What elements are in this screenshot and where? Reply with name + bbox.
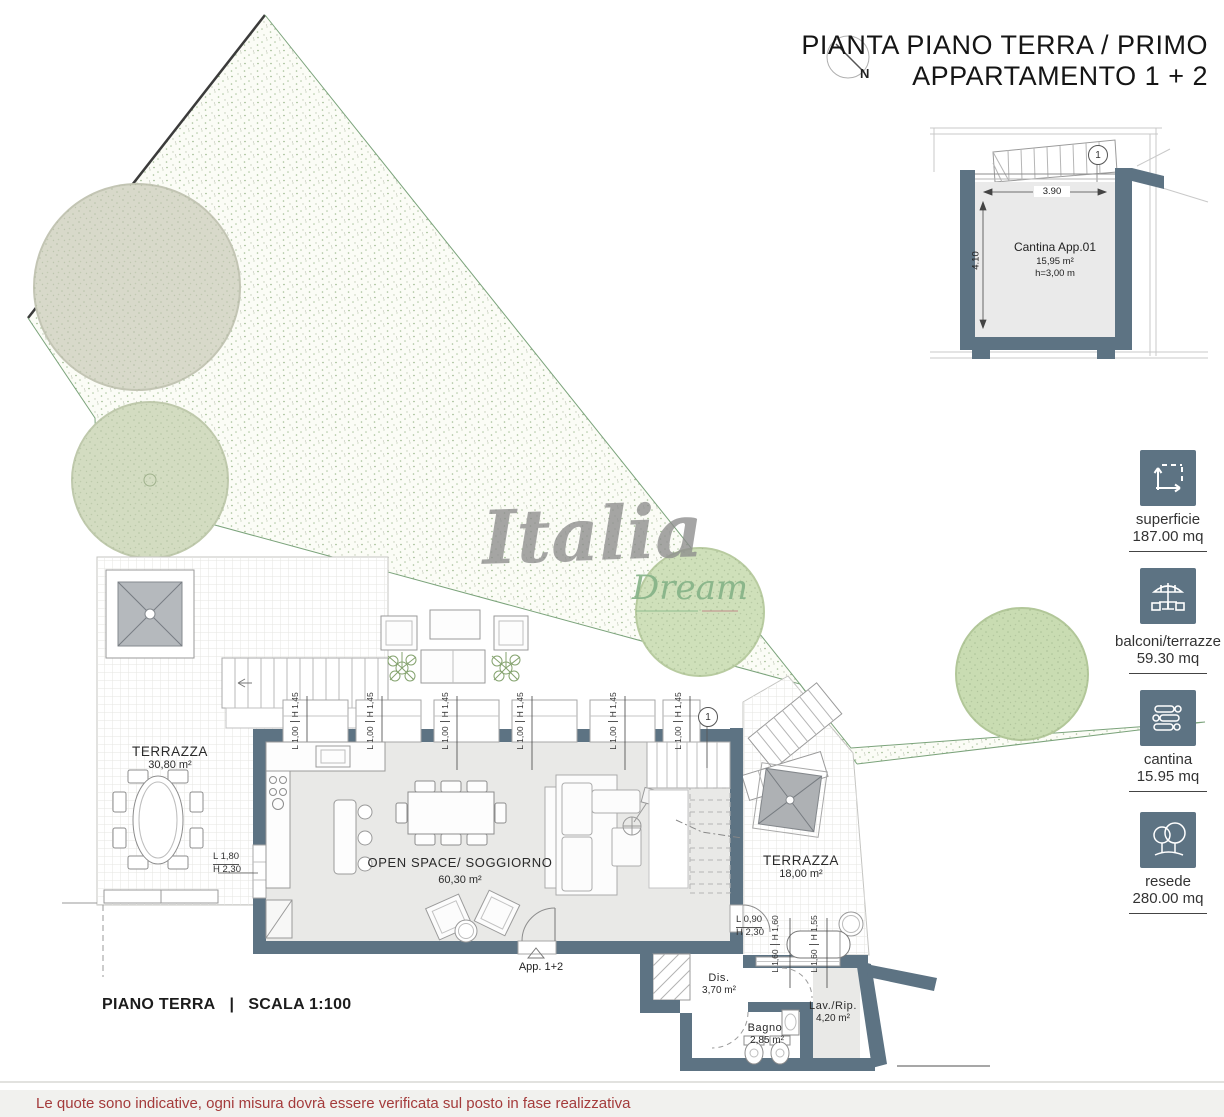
entrance-label: App. 1+2 — [501, 961, 581, 973]
legend-superficie-box — [1140, 450, 1196, 506]
window-dim-label: L 1,00H 1,45 — [601, 698, 625, 744]
legend-divider — [1129, 913, 1207, 914]
page-title-line1: PIANTA PIANO TERRA / PRIMO — [608, 30, 1208, 61]
north-label: N — [860, 66, 869, 81]
legend-cantina-label: cantina — [1098, 751, 1224, 768]
inset-room-name: Cantina App.01 — [995, 240, 1115, 254]
legend-resede-box — [1140, 812, 1196, 868]
area-icon — [1148, 458, 1188, 498]
legend-cantina-value: 15.95 mq — [1098, 768, 1224, 785]
window-dim-label: L 1,00H 1,45 — [666, 698, 690, 744]
inset-room-height: h=3,00 m — [995, 268, 1115, 279]
inset-dim-width: 3.90 — [1034, 186, 1070, 197]
terrace-left-name: TERRAZZA — [110, 744, 230, 759]
legend-divider — [1129, 791, 1207, 792]
bagno-area: 2,85 m² — [736, 1035, 798, 1046]
lav-area: 4,20 m² — [800, 1013, 866, 1024]
scale-label: SCALA 1:100 — [248, 996, 351, 1013]
tree-right — [956, 608, 1088, 740]
legend-divider — [1129, 673, 1207, 674]
windows-top — [283, 700, 700, 742]
entrance-marker-number: 1 — [698, 707, 718, 727]
garden-icon — [1147, 819, 1189, 861]
boiler-dim-label-b: L 1,60H 1,55 — [802, 921, 826, 967]
dis-area: 3,70 m² — [689, 985, 749, 996]
terrace-right-area: 18,00 m² — [741, 868, 861, 880]
terrace-right-name: TERRAZZA — [741, 853, 861, 868]
terrace-door-dim-label: L 0,90 H 2,30 — [736, 915, 778, 939]
legend-resede-label: resede — [1098, 873, 1224, 890]
window-dim-label: L 1,00H 1,45 — [508, 698, 532, 744]
inset-dim-height: 4.10 — [971, 243, 982, 279]
legend-cantina-box — [1140, 690, 1196, 746]
pergola-left — [106, 570, 194, 658]
patio-set — [381, 610, 528, 683]
tree-mid-left — [72, 402, 228, 558]
legend-divider — [1129, 551, 1207, 552]
legend-terrazze-label: balconi/terrazze — [1098, 633, 1224, 650]
window-dim-label: L 1,00H 1,45 — [433, 698, 457, 744]
terrace-icon — [1147, 575, 1189, 617]
left-door-dim-label: L 1,80 H 2,30 — [213, 852, 255, 876]
corner-niche — [266, 900, 292, 938]
watermark-dream: Dream — [632, 568, 748, 608]
terrace-left-area: 30,80 m² — [110, 759, 230, 771]
inset-room-area: 15,95 m² — [995, 256, 1115, 267]
open-space-area: 60,30 m² — [360, 874, 560, 886]
scale-separator: | — [230, 996, 235, 1013]
legend-superficie-label: superficie — [1098, 511, 1224, 528]
legend-resede-value: 280.00 mq — [1098, 890, 1224, 907]
window-dim-label: L 1,00H 1,45 — [358, 698, 382, 744]
tree-large-gray — [34, 184, 240, 390]
open-space-name: OPEN SPACE/ SOGGIORNO — [360, 855, 560, 870]
footer-disclaimer: Le quote sono indicative, ogni misura do… — [36, 1095, 631, 1112]
plant-left — [388, 652, 416, 681]
lav-name: Lav./Rip. — [800, 1000, 866, 1012]
window-dim-label: L 1,00H 1,45 — [283, 698, 307, 744]
bagno-name: Bagno — [734, 1022, 796, 1034]
legend-terrazze-value: 59.30 mq — [1098, 650, 1224, 667]
page-title-line2: APPARTAMENTO 1 + 2 — [608, 61, 1208, 92]
legend-terrazze-box — [1140, 568, 1196, 624]
dis-name: Dis. — [689, 972, 749, 984]
plan-level-label: PIANO TERRA — [102, 996, 216, 1013]
footer-divider — [0, 1081, 1224, 1083]
bench — [104, 890, 218, 903]
cellar-icon — [1147, 697, 1189, 739]
plant-right — [492, 652, 520, 681]
legend-superficie-value: 187.00 mq — [1098, 528, 1224, 545]
inset-marker: 1 — [1088, 145, 1108, 165]
scale-bar: PIANO TERRA|SCALA 1:100 — [102, 996, 352, 1014]
